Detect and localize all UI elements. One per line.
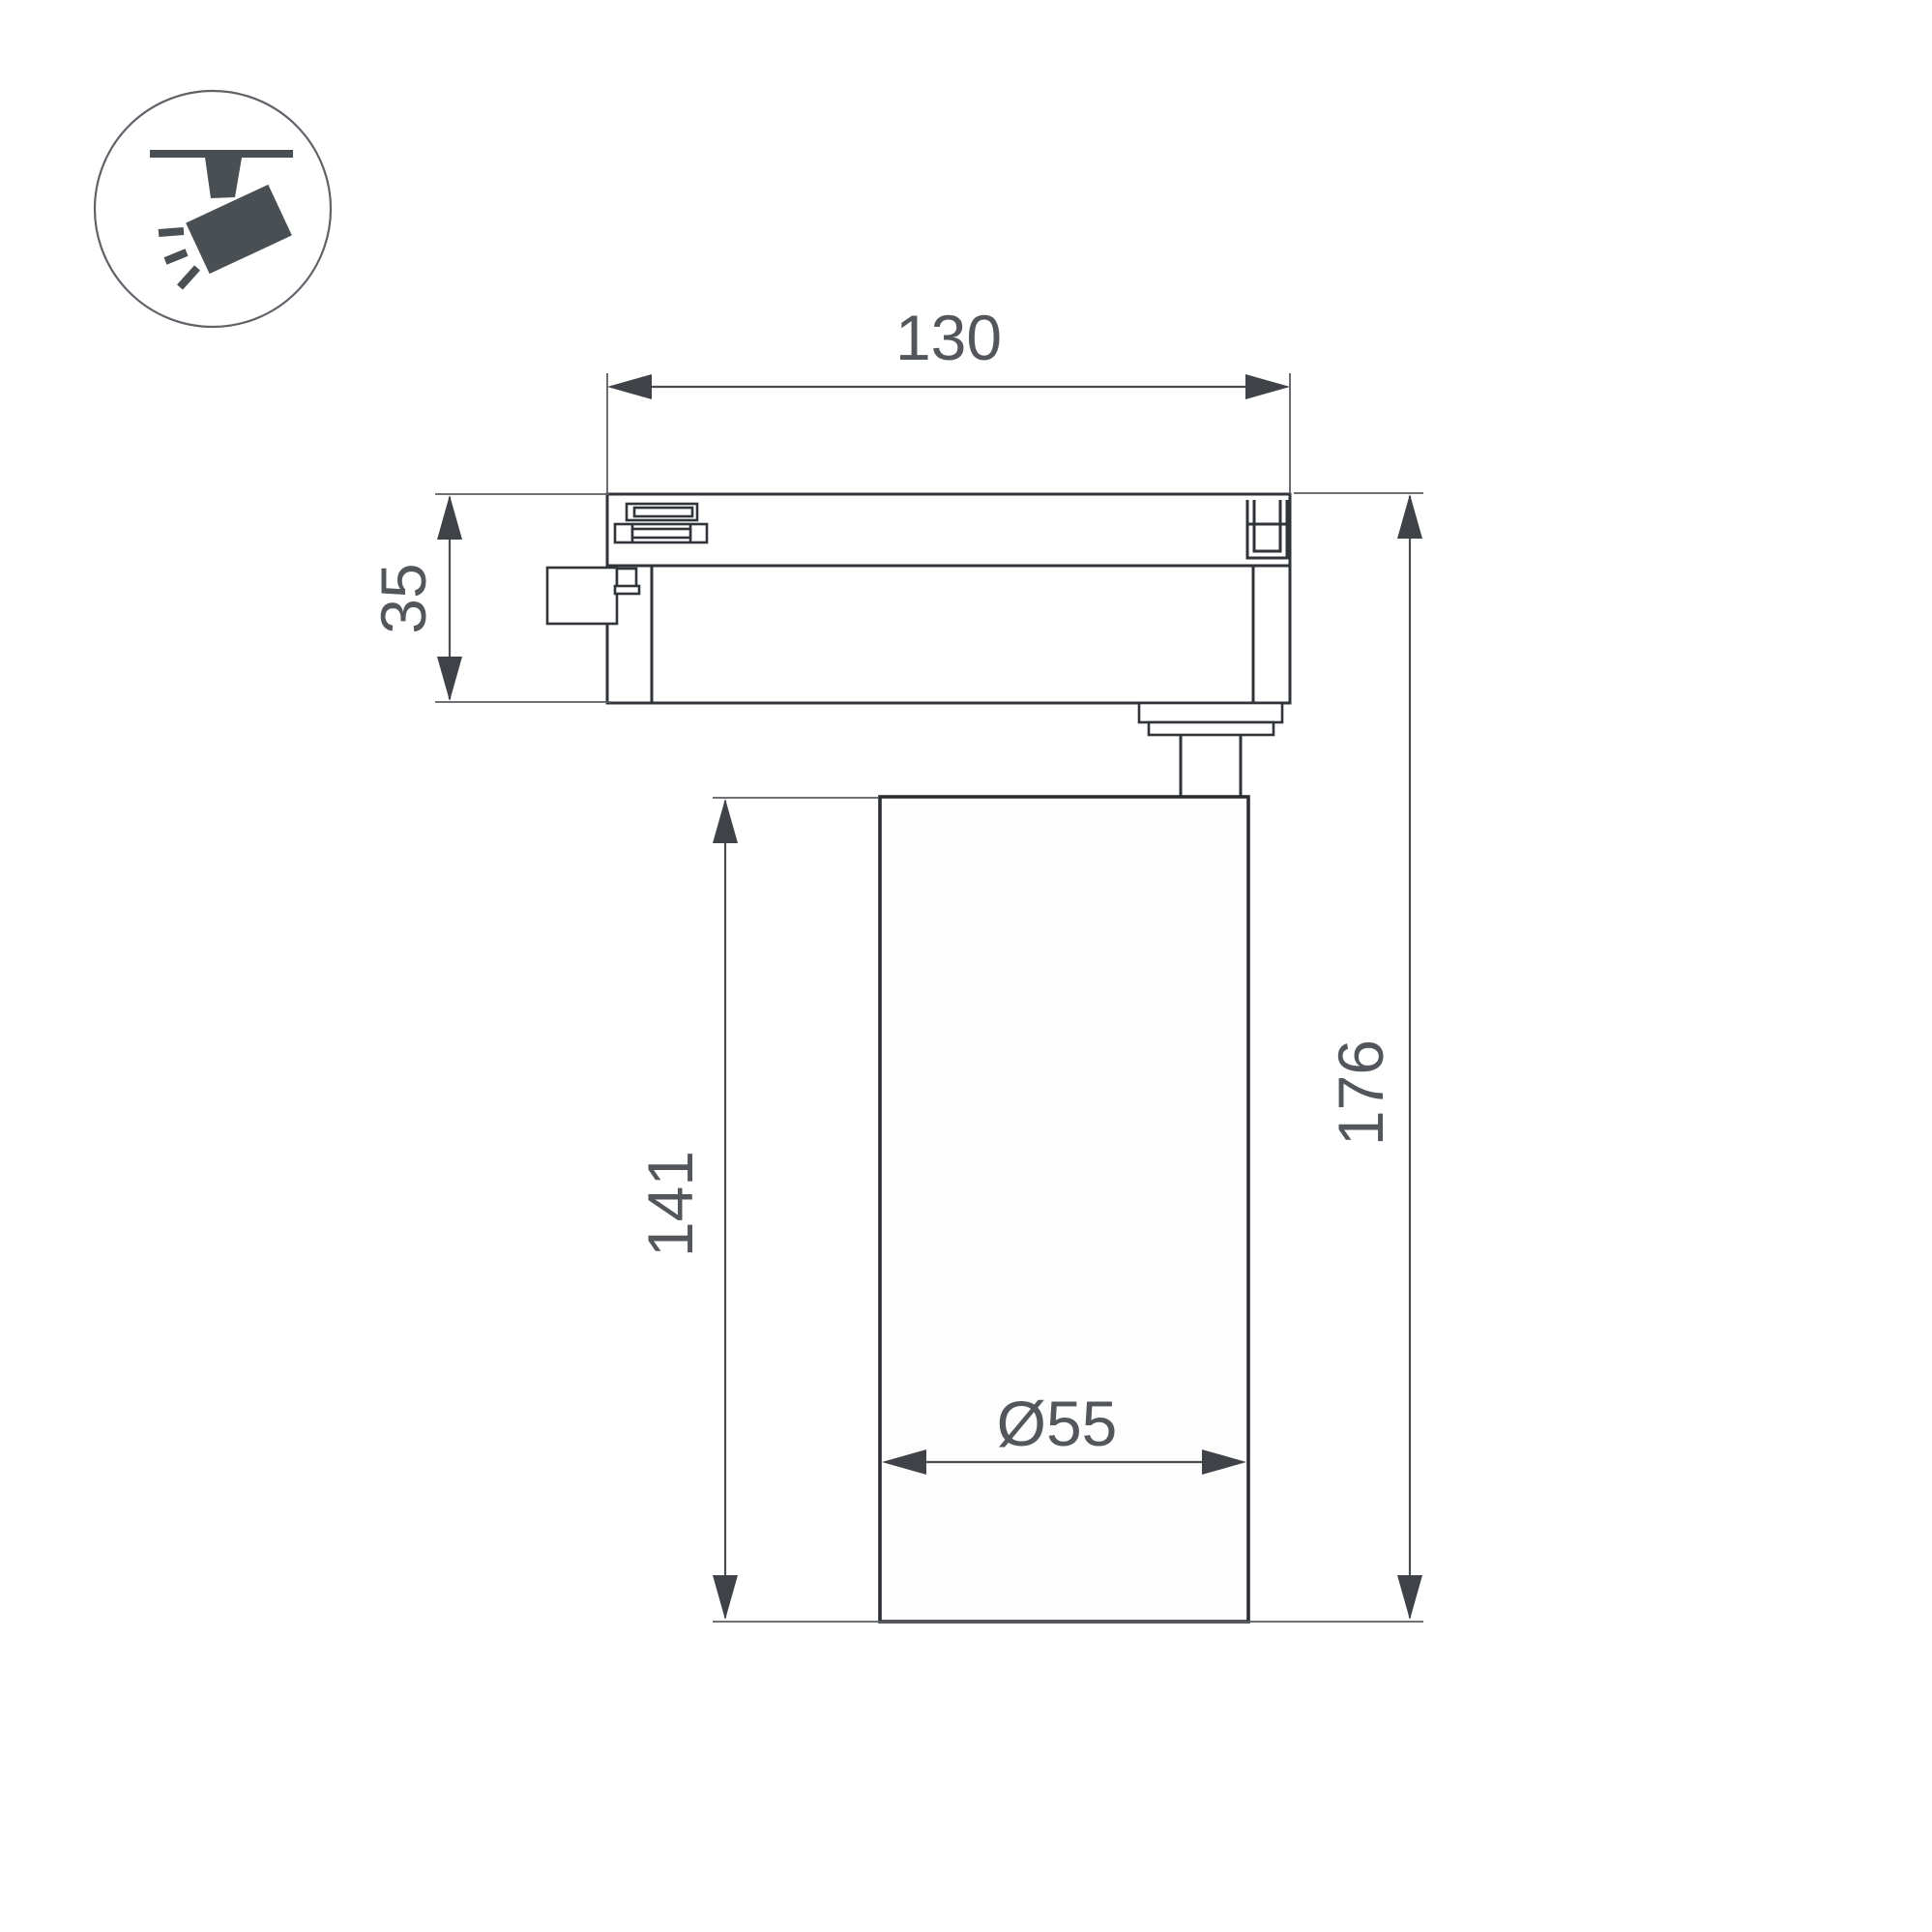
dim-label-track-width: 130 bbox=[895, 302, 1002, 373]
arrowhead-left bbox=[607, 374, 652, 399]
arrowhead-up bbox=[713, 799, 738, 843]
arrowhead-down bbox=[1397, 1575, 1422, 1620]
pedestal-step-1 bbox=[1139, 703, 1282, 722]
lamp-cylinder bbox=[880, 797, 1248, 1622]
arrowhead-down bbox=[713, 1575, 738, 1620]
u-clip bbox=[1247, 500, 1287, 558]
arrowhead-up bbox=[437, 495, 462, 540]
latch-step bbox=[615, 586, 639, 594]
dim-label-body-diameter: Ø55 bbox=[997, 1388, 1118, 1459]
icon-track-bar bbox=[150, 150, 293, 158]
contact-block-inner bbox=[632, 529, 690, 538]
arrowhead-right bbox=[1245, 374, 1290, 399]
adapter-upper-section bbox=[607, 494, 1290, 566]
dim-body-height: 141 bbox=[634, 798, 878, 1620]
dim-label-body-height: 141 bbox=[634, 1151, 706, 1257]
track-adapter bbox=[547, 494, 1290, 703]
dim-label-total-height: 176 bbox=[1325, 1039, 1396, 1146]
arrowhead-down bbox=[437, 657, 462, 701]
drawing-canvas: 130 35 141 176 Ø55 bbox=[0, 0, 1932, 1932]
dim-track-width: 130 bbox=[607, 302, 1290, 494]
dim-total-height: 176 bbox=[1294, 493, 1423, 1620]
contact-blocks bbox=[615, 504, 707, 542]
lamp-body bbox=[880, 797, 1248, 1622]
adapter-housing bbox=[607, 566, 1290, 703]
dim-label-adapter-height: 35 bbox=[367, 563, 439, 633]
icon-circle bbox=[95, 91, 331, 327]
arrowhead-up bbox=[1397, 494, 1422, 539]
icon-light-ray bbox=[159, 231, 184, 233]
latch-handle bbox=[547, 568, 617, 624]
track-spotlight-icon bbox=[95, 91, 331, 327]
pedestal-step-2 bbox=[1149, 722, 1273, 735]
contact-block-inner bbox=[634, 508, 692, 516]
mount-pedestal bbox=[1139, 703, 1282, 797]
technical-drawing: 130 35 141 176 Ø55 bbox=[0, 0, 1932, 1932]
